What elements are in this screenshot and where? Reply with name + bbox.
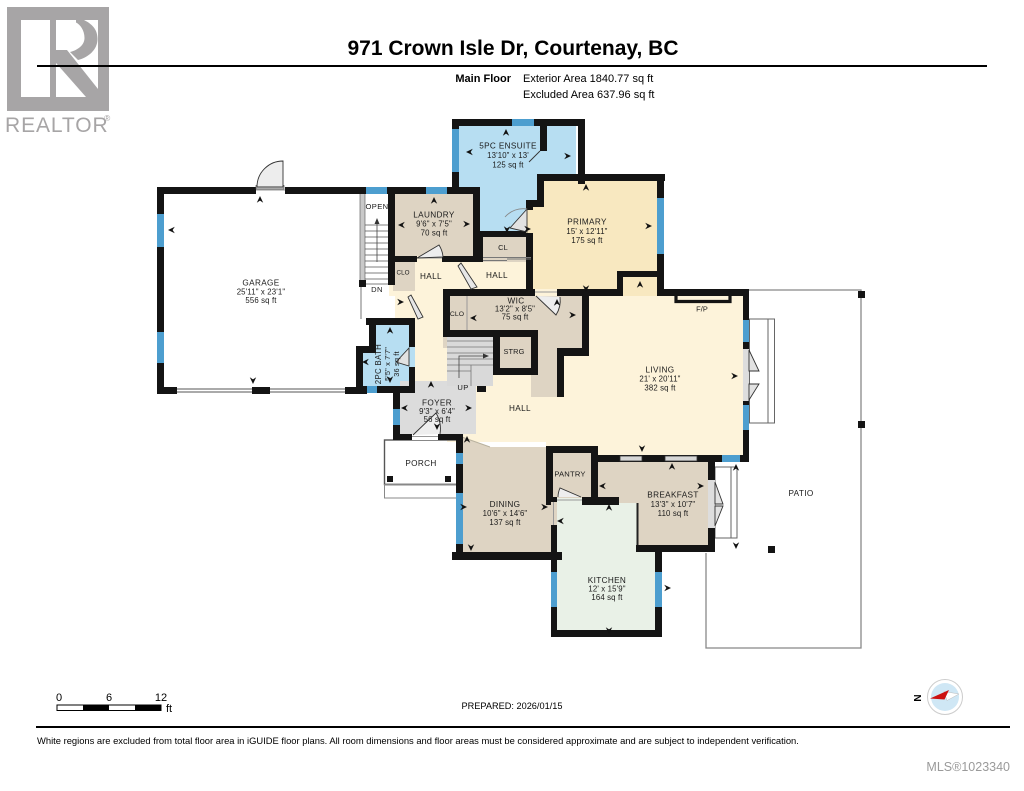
svg-text:10'6" x 14'6": 10'6" x 14'6" bbox=[483, 509, 528, 518]
svg-text:5'5" x 7'7": 5'5" x 7'7" bbox=[383, 347, 392, 381]
svg-text:White regions are excluded fro: White regions are excluded from total fl… bbox=[37, 735, 799, 746]
svg-text:LIVING: LIVING bbox=[646, 366, 675, 375]
svg-text:PREPARED: 2026/01/15: PREPARED: 2026/01/15 bbox=[462, 701, 563, 711]
svg-text:6: 6 bbox=[106, 692, 112, 704]
svg-text:556 sq ft: 556 sq ft bbox=[245, 296, 277, 305]
svg-text:110 sq ft: 110 sq ft bbox=[658, 509, 689, 518]
svg-text:70 sq ft: 70 sq ft bbox=[421, 229, 448, 238]
svg-text:971 Crown Isle Dr, Courtenay,: 971 Crown Isle Dr, Courtenay, BC bbox=[347, 37, 678, 60]
svg-text:BREAKFAST: BREAKFAST bbox=[647, 491, 698, 500]
svg-text:HALL: HALL bbox=[509, 404, 531, 413]
svg-text:PRIMARY: PRIMARY bbox=[567, 218, 607, 227]
svg-text:CL: CL bbox=[498, 243, 508, 252]
svg-text:HALL: HALL bbox=[420, 272, 442, 281]
svg-text:382 sq ft: 382 sq ft bbox=[644, 384, 676, 393]
svg-text:21' x 20'11": 21' x 20'11" bbox=[639, 375, 680, 384]
svg-text:15' x 12'11": 15' x 12'11" bbox=[566, 227, 607, 236]
svg-text:®: ® bbox=[104, 113, 111, 123]
svg-text:PANTRY: PANTRY bbox=[554, 470, 585, 479]
svg-text:CLO: CLO bbox=[450, 311, 464, 318]
svg-text:LAUNDRY: LAUNDRY bbox=[413, 211, 455, 220]
svg-text:STRG: STRG bbox=[504, 347, 525, 356]
svg-text:137 sq ft: 137 sq ft bbox=[489, 518, 521, 527]
svg-text:13'3" x 10'7": 13'3" x 10'7" bbox=[651, 500, 696, 509]
svg-text:REALTOR: REALTOR bbox=[5, 114, 109, 137]
svg-text:ft: ft bbox=[166, 703, 172, 715]
svg-text:36 sq ft: 36 sq ft bbox=[392, 351, 401, 376]
svg-text:9'6" x 7'5": 9'6" x 7'5" bbox=[416, 220, 452, 229]
svg-text:175 sq ft: 175 sq ft bbox=[571, 236, 603, 245]
svg-text:HALL: HALL bbox=[486, 271, 508, 280]
svg-text:UP: UP bbox=[457, 383, 468, 392]
svg-text:164 sq ft: 164 sq ft bbox=[591, 593, 623, 602]
svg-text:Excluded Area 637.96 sq ft: Excluded Area 637.96 sq ft bbox=[523, 89, 654, 101]
svg-text:OPEN: OPEN bbox=[366, 202, 389, 211]
svg-text:CLO: CLO bbox=[397, 270, 410, 277]
svg-text:75 sq ft: 75 sq ft bbox=[502, 313, 529, 322]
svg-text:2PC BATH: 2PC BATH bbox=[374, 344, 383, 384]
svg-text:5PC ENSUITE: 5PC ENSUITE bbox=[479, 142, 537, 151]
svg-text:13'10" x 13': 13'10" x 13' bbox=[487, 151, 529, 160]
svg-text:GARAGE: GARAGE bbox=[242, 279, 279, 288]
svg-text:PATIO: PATIO bbox=[788, 489, 813, 498]
svg-text:Exterior Area 1840.77 sq ft: Exterior Area 1840.77 sq ft bbox=[523, 73, 653, 85]
svg-text:DN: DN bbox=[371, 285, 383, 294]
svg-text:MLS®1023340: MLS®1023340 bbox=[926, 760, 1010, 774]
svg-text:DINING: DINING bbox=[490, 500, 521, 509]
svg-text:F/P: F/P bbox=[696, 305, 708, 314]
svg-text:PORCH: PORCH bbox=[405, 459, 436, 468]
svg-text:56 sq ft: 56 sq ft bbox=[424, 415, 451, 424]
svg-text:Main Floor: Main Floor bbox=[455, 73, 511, 85]
svg-text:0: 0 bbox=[56, 692, 62, 704]
svg-text:125 sq ft: 125 sq ft bbox=[492, 161, 524, 170]
svg-text:N: N bbox=[913, 694, 924, 701]
